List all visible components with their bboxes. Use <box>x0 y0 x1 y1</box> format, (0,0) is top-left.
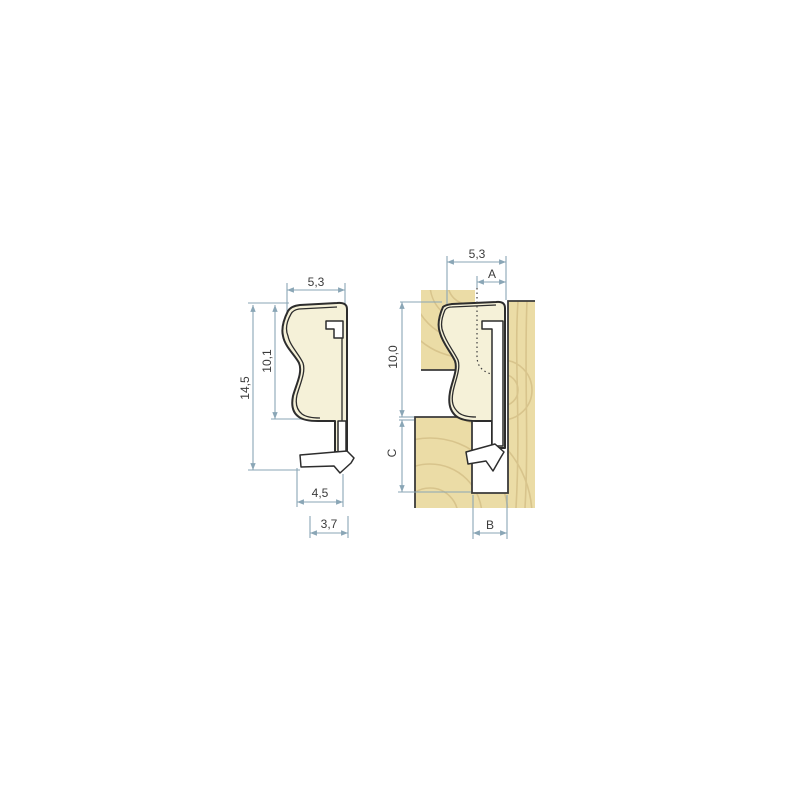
dim-label-foot-width: 4,5 <box>312 486 329 500</box>
technical-drawing-canvas: 5,3 14,5 10,1 4,5 3,7 <box>0 0 800 800</box>
dim-label-top-width-left: 5,3 <box>308 275 325 289</box>
dim-label-bulb-height-right: 10,0 <box>386 345 400 369</box>
left-profile-view: 5,3 14,5 10,1 4,5 3,7 <box>238 275 354 538</box>
dim-label-total-height: 14,5 <box>238 376 252 400</box>
dim-label-lower-depth: C <box>385 448 399 457</box>
dim-label-groove-width: B <box>486 518 494 532</box>
installed-profile-view: 5,3 A 10,0 C B <box>328 210 542 618</box>
seal-foot <box>300 451 354 473</box>
seal-stem-channel <box>338 421 346 452</box>
dim-label-compression: A <box>488 267 496 281</box>
dim-label-base-width: 3,7 <box>321 517 338 531</box>
seal-profile-diagram: 5,3 14,5 10,1 4,5 3,7 <box>0 0 800 800</box>
dim-label-bulb-height-left: 10,1 <box>260 349 274 373</box>
dim-label-top-width-right: 5,3 <box>469 247 486 261</box>
